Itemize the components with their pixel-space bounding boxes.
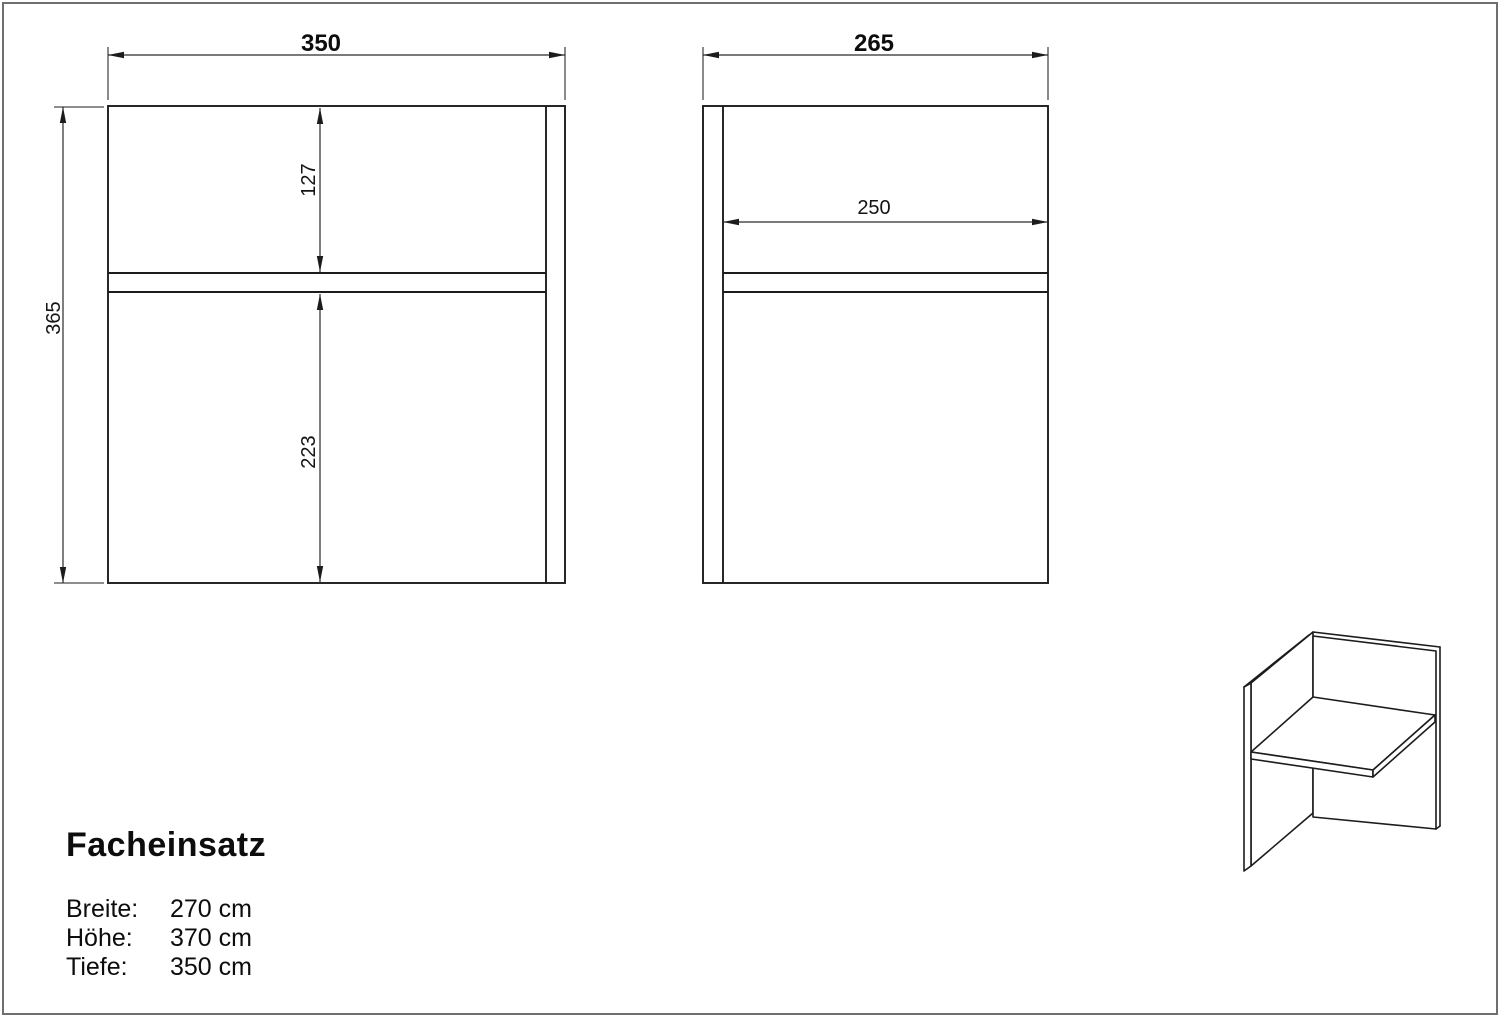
spec-row-breite: Breite: 270 cm xyxy=(66,895,266,924)
front-view: 350 365 127 xyxy=(43,30,565,583)
front-view-outline xyxy=(108,106,565,583)
spec-value: 270 cm xyxy=(170,895,252,924)
side-view-inner-dimension: 250 xyxy=(723,197,1048,225)
front-view-lower-dimension: 223 xyxy=(298,294,323,582)
side-view-width-dimension: 265 xyxy=(703,30,1048,100)
side-view-outline xyxy=(703,106,1048,583)
spec-label: Breite: xyxy=(66,895,170,924)
isometric-sketch xyxy=(1244,632,1440,871)
front-view-upper-label: 127 xyxy=(298,163,320,196)
side-view-inner-label: 250 xyxy=(857,197,890,219)
product-specs: Breite: 270 cm Höhe: 370 cm Tiefe: 350 c… xyxy=(66,895,266,982)
front-view-height-dimension: 365 xyxy=(43,107,104,583)
spec-value: 350 cm xyxy=(170,953,252,982)
front-view-lower-label: 223 xyxy=(298,435,320,468)
product-title: Facheinsatz xyxy=(66,826,266,865)
spec-value: 370 cm xyxy=(170,924,252,953)
side-view-width-label: 265 xyxy=(854,30,894,57)
spec-row-hoehe: Höhe: 370 cm xyxy=(66,924,266,953)
technical-drawing-page: 350 365 127 xyxy=(0,0,1500,1017)
front-view-width-label: 350 xyxy=(301,30,341,57)
front-view-height-label: 365 xyxy=(43,301,65,334)
product-info: Facheinsatz Breite: 270 cm Höhe: 370 cm … xyxy=(66,826,266,982)
spec-row-tiefe: Tiefe: 350 cm xyxy=(66,953,266,982)
side-view: 265 250 xyxy=(703,30,1048,583)
spec-label: Höhe: xyxy=(66,924,170,953)
front-view-upper-dimension: 127 xyxy=(298,108,323,272)
front-view-width-dimension: 350 xyxy=(108,30,565,100)
spec-label: Tiefe: xyxy=(66,953,170,982)
